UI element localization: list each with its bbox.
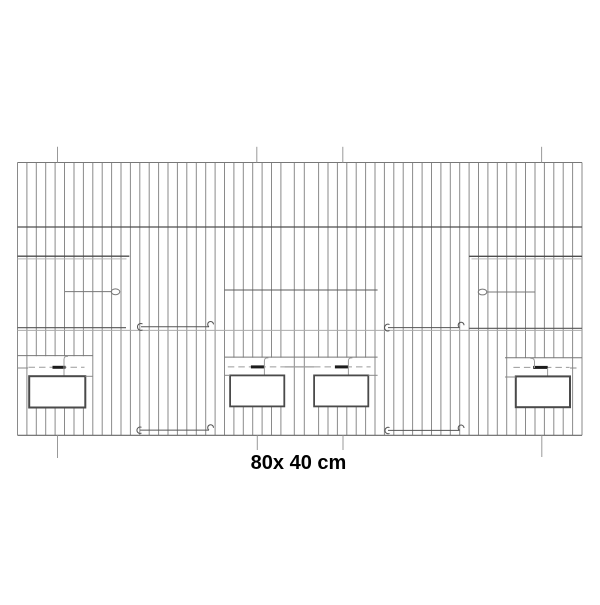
svg-text:80x 40 cm: 80x 40 cm xyxy=(251,452,347,474)
